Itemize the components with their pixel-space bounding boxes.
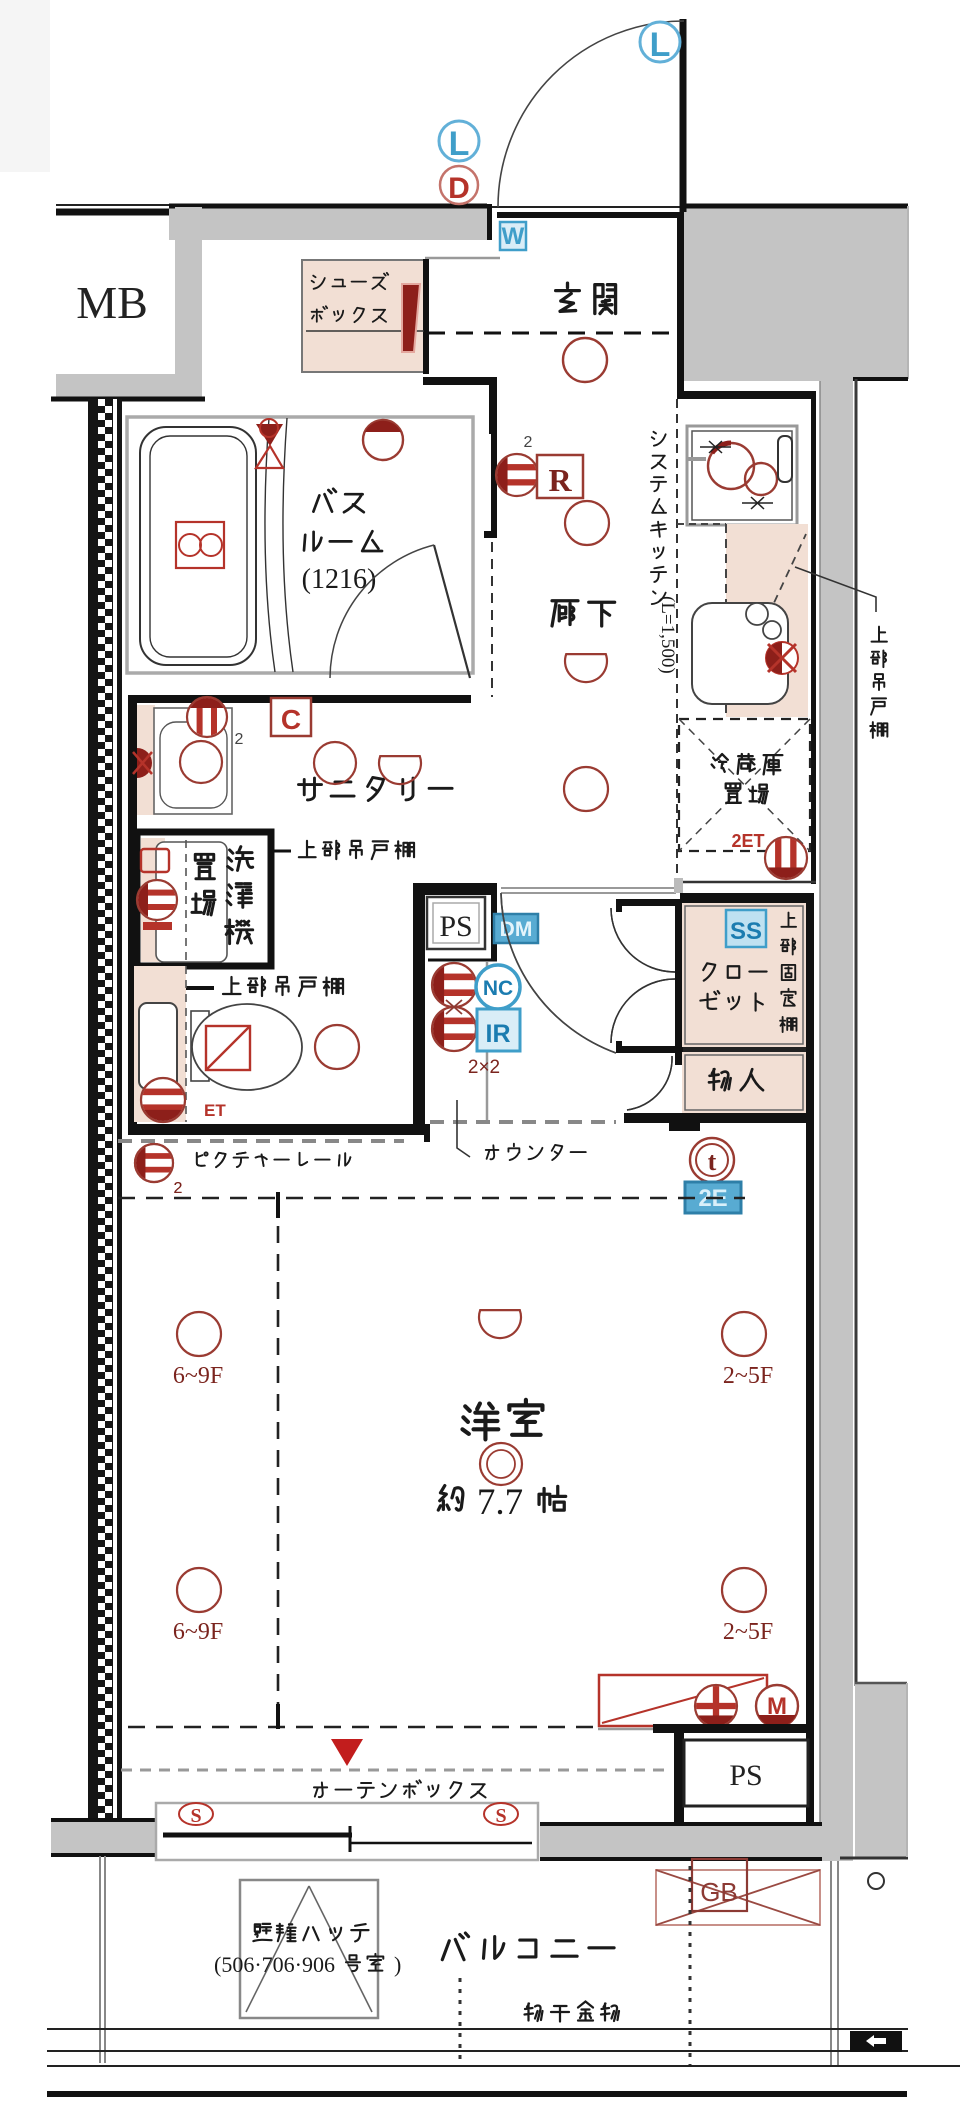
svg-text:S: S bbox=[495, 1805, 506, 1827]
svg-text:(L=1,500): (L=1,500) bbox=[657, 596, 678, 674]
svg-text:2~5F: 2~5F bbox=[723, 1363, 773, 1389]
svg-text:6~9F: 6~9F bbox=[173, 1619, 223, 1645]
svg-text:L: L bbox=[650, 26, 671, 64]
svg-text:6~9F: 6~9F bbox=[173, 1363, 223, 1389]
svg-text:t: t bbox=[708, 1147, 717, 1176]
svg-text:2: 2 bbox=[235, 731, 244, 748]
svg-text:): ) bbox=[394, 1952, 401, 1977]
svg-text:L: L bbox=[449, 125, 470, 163]
svg-text:SS: SS bbox=[730, 918, 762, 945]
svg-text:R: R bbox=[548, 462, 572, 498]
svg-text:2: 2 bbox=[524, 434, 533, 451]
svg-text:C: C bbox=[281, 704, 301, 735]
svg-text:GB: GB bbox=[700, 1877, 738, 1907]
svg-text:2: 2 bbox=[174, 1180, 183, 1197]
svg-text:S: S bbox=[190, 1805, 201, 1827]
svg-text:IR: IR bbox=[486, 1020, 511, 1048]
svg-text:PS: PS bbox=[729, 1759, 762, 1792]
svg-text:2×2: 2×2 bbox=[468, 1057, 500, 1078]
svg-text:W: W bbox=[502, 223, 525, 250]
svg-text:2~5F: 2~5F bbox=[723, 1619, 773, 1645]
svg-text:M: M bbox=[767, 1693, 787, 1720]
svg-text:(506·706·906: (506·706·906 bbox=[214, 1952, 335, 1977]
svg-text:ET: ET bbox=[204, 1101, 226, 1120]
svg-text:D: D bbox=[448, 172, 470, 205]
svg-text:(1216): (1216) bbox=[302, 564, 377, 595]
svg-text:2ET: 2ET bbox=[731, 831, 764, 851]
svg-text:7.7: 7.7 bbox=[477, 1482, 523, 1523]
svg-text:NC: NC bbox=[483, 977, 513, 1000]
svg-text:MB: MB bbox=[76, 277, 148, 328]
svg-text:PS: PS bbox=[439, 910, 472, 943]
